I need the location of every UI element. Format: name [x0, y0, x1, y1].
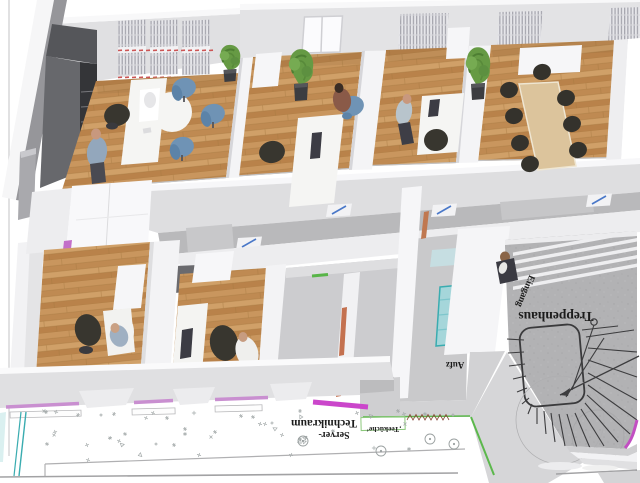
svg-text:Server-: Server-: [318, 429, 349, 440]
svg-text:Technikraum: Technikraum: [291, 417, 357, 429]
svg-text:Aufz: Aufz: [446, 360, 465, 370]
svg-text:Treppenhaus: Treppenhaus: [518, 309, 593, 324]
svg-text:‚Teeküche‘: ‚Teeküche‘: [366, 425, 402, 434]
